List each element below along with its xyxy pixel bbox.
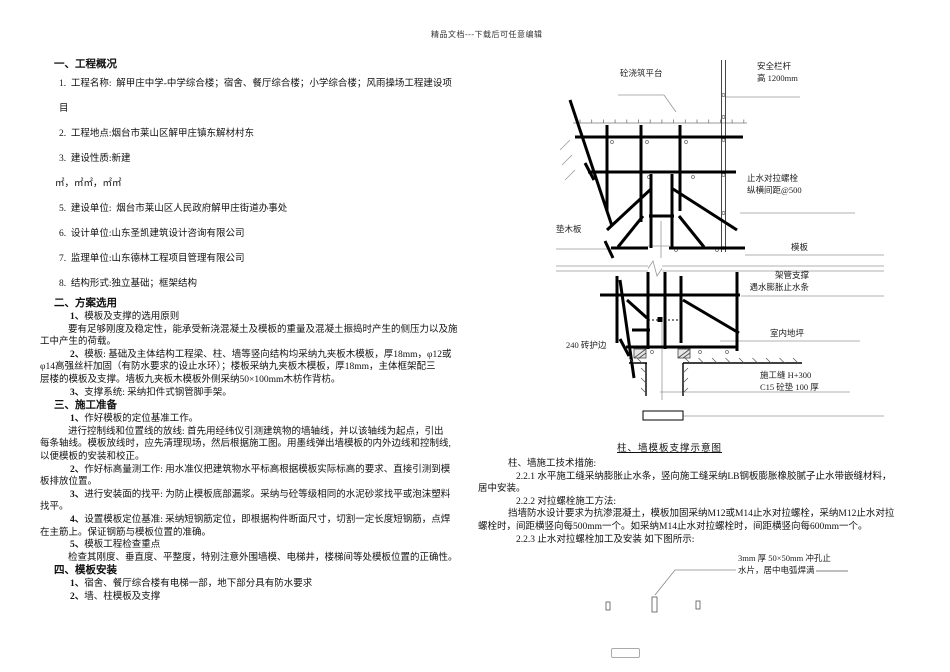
formwork-support-diagram <box>545 58 890 462</box>
platform-tick-line <box>573 120 747 124</box>
left-text-column: 一、工程概况1. 工程名称: 解甲庄中学-中学综合楼；宿舍、餐厅综合楼；小学综合… <box>40 58 485 603</box>
text-line: 1、模板及支撑的选用原则 <box>40 311 485 324</box>
text-line: 5. 建设单位: 烟台市莱山区人民政府解甲庄街道办事处 <box>40 197 485 222</box>
text-line: 2、作好标高量测工作: 用水准仪把建筑物水平标高根据模板实际标高的要求、直接引测… <box>40 464 485 477</box>
text-line: 2. 工程地点:烟台市莱山区解甲庄镇东解材村东 <box>40 122 485 147</box>
label-wood-pad: 垫木板 <box>556 224 582 236</box>
item-number: 4、 <box>70 515 84 525</box>
text-line: ㎡，㎡㎡，㎡㎡ <box>40 172 485 197</box>
label-formwork: 模板 <box>791 242 808 254</box>
text-line: 3. 建设性质:新建 <box>40 147 485 172</box>
text-line: 居中安装。 <box>478 483 890 496</box>
text-line: 柱、墙施工技术措施: <box>478 458 890 471</box>
text-line: 目 <box>40 97 485 122</box>
item-number: 2、 <box>70 592 84 602</box>
footing-pad <box>643 411 683 420</box>
label-pipe-support: 架管支撑遇水膨胀止水条 <box>737 270 809 293</box>
text-line: 四、模板安装 <box>40 564 485 578</box>
text-line: 层楼的模板及支撑。墙板九夹板木模板外侧采纳50×100mm木枋作背枋。 <box>40 374 485 387</box>
label-safety-rail: 安全栏杆高 1200mm <box>757 61 798 84</box>
text-line: 工中产生的荷载。 <box>40 336 485 349</box>
text-line: 挡墙防水设计要求为抗渗混凝土，模板加固采纳M12或M14止水对拉螺栓，采纳M12… <box>478 508 890 521</box>
item-number: 1、 <box>70 312 84 322</box>
label-punched-plate: 3mm 厚 50×50mm 冲孔止水片，居中电弧焊满 <box>738 553 831 576</box>
item-number: 1、 <box>70 579 84 589</box>
label-construction-joint: 施工缝 H+300C15 砼垫 100 厚 <box>760 370 819 393</box>
text-line: 要有足够刚度及稳定性，能承受新浇混凝土及模板的重量及混凝土振捣时产生的侧压力以及… <box>40 324 485 337</box>
text-line: 1、宿舍、餐厅综合楼有电梯一部，地下部分具有防水要求 <box>40 578 485 591</box>
text-line: 2.2.1 水平施工缝采纳膨胀止水条，竖向施工缝采纳LB钢板膨胀橡胶腻子止水带嵌… <box>478 471 890 484</box>
text-line: 7. 监理单位:山东德林工程项目管理有限公司 <box>40 247 485 272</box>
text-line: 进行控制线和位置线的放线: 首先用经纬仪引测建筑物的墙轴线，并以该轴线为起点，引… <box>40 426 485 439</box>
text-line: φ14高强丝杆加固（有防水要求的设止水环）；楼板采纳九夹板木模板，厚18mm，主… <box>40 361 485 374</box>
text-line: 1、作好模板的定位基准工作。 <box>40 413 485 426</box>
bolt-circles <box>611 94 729 354</box>
label-brick-edge: 240 砖护边 <box>566 340 606 352</box>
item-number: 3、 <box>70 490 84 500</box>
text-line: 5、模板工程检查重点 <box>40 539 485 552</box>
text-line: 4、设置模板定位基准: 采纳短钢筋定位，即根据构件断面尺寸，切割一定长度短钢筋，… <box>40 514 485 527</box>
text-line: 在主筋上。保证钢筋与模板位置的准确。 <box>40 527 485 540</box>
text-line: 6. 设计单位:山东圣凯建筑设计咨询有限公司 <box>40 222 485 247</box>
leader-lines <box>556 95 884 416</box>
diagram-caption: 柱、墙模板支撑示意图 <box>617 440 722 454</box>
text-line: 3、进行安装面的找平: 为防止模板底部漏浆。采纳与砼等级相同的水泥砂浆找平或泡沫… <box>40 489 485 502</box>
text-line: 检查其刚度、垂直度、平整度，特别注意外围墙模、电梯井，楼梯间等处模板位置的正确性… <box>40 552 485 565</box>
label-tie-bolt: 止水对拉螺栓纵横间距@500 <box>747 173 802 196</box>
text-line: 一、工程概况 <box>40 58 485 72</box>
item-number: 2、 <box>70 465 84 475</box>
text-line: 以便模板的安装和校正。 <box>40 451 485 464</box>
item-number: 2、 <box>70 350 84 360</box>
text-line: 找平。 <box>40 501 485 514</box>
label-concrete-platform: 砼浇筑平台 <box>620 68 663 80</box>
lower-scaffold-members <box>600 272 740 378</box>
text-line: 螺栓时，间距横竖向每500mm一个。如采纳M14止水对拉螺栓时，间距横竖向每60… <box>478 521 890 534</box>
text-line: 1. 工程名称: 解甲庄中学-中学综合楼；宿舍、餐厅综合楼；小学综合楼；风雨操场… <box>40 72 485 97</box>
text-line: 2.2.3 止水对拉螺栓加工及安装 如下图所示: <box>478 534 890 547</box>
text-line: 2、墙、柱模板及支撑 <box>40 591 485 604</box>
document-page: 精品文档---下载后可任意编辑 一、工程概况1. 工程名称: 解甲庄中学-中学综… <box>0 0 950 672</box>
item-number: 3、 <box>70 388 84 398</box>
text-line: 2、模板: 基础及主体结构工程梁、柱、墙等竖向结构均采纳九夹板木模板，厚18mm… <box>40 349 485 362</box>
item-number: 5、 <box>70 540 84 550</box>
upper-scaffold-members <box>570 100 745 258</box>
text-line: 三、施工准备 <box>40 399 485 413</box>
label-indoor-floor: 室内地坪 <box>770 328 804 340</box>
right-text-column: 柱、墙施工技术措施:2.2.1 水平施工缝采纳膨胀止水条，竖向施工缝采纳LB钢板… <box>478 458 890 546</box>
text-line: 8. 结构形式:独立基础；框架结构 <box>40 272 485 297</box>
text-line: 每条轴线。模板放线时，应先清理现场，然后根据施工图。用墨线弹出墙模板的内外边线和… <box>40 438 485 451</box>
page-marker <box>611 648 640 658</box>
text-line: 2.2.2 对拉螺栓施工方法: <box>478 496 890 509</box>
bolt-plate-shapes <box>606 597 700 612</box>
watermark-text: 精品文档---下载后可任意编辑 <box>431 29 543 40</box>
text-line: 板排放位置。 <box>40 476 485 489</box>
item-number: 1、 <box>70 414 84 424</box>
text-line: 3、支撑系统: 采纳扣件式钢管脚手架。 <box>40 387 485 400</box>
text-line: 二、方案选用 <box>40 297 485 311</box>
